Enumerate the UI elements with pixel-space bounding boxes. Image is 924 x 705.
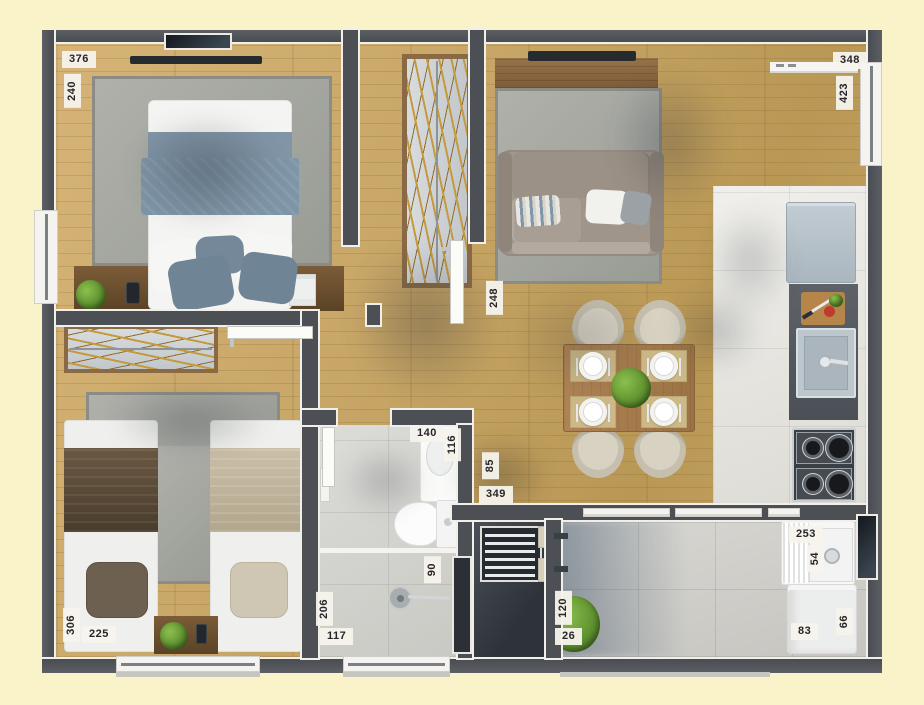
tv-panel	[495, 58, 658, 88]
dim-label-120: 120	[555, 591, 572, 625]
dim-label-90: 90	[424, 556, 441, 583]
bedroom2-door	[227, 326, 313, 339]
dim-label-423: 423	[836, 76, 853, 110]
window-living-right	[860, 62, 882, 166]
pillow	[86, 562, 148, 618]
sofa-front-edge	[512, 242, 650, 254]
ac-grille-unit	[480, 526, 542, 582]
refrigerator	[786, 202, 856, 283]
window-glass-line	[121, 663, 255, 666]
grille-slats	[485, 531, 535, 577]
tank-faucet	[824, 548, 840, 564]
wardrobe-rail	[70, 348, 212, 350]
tv-bedroom1	[130, 56, 262, 64]
striped-pillow	[515, 195, 561, 228]
wardrobe-bedroom2	[64, 325, 218, 373]
dim-label-26: 26	[555, 628, 582, 645]
dim-label-376: 376	[62, 51, 96, 68]
service-window-pane	[768, 508, 800, 517]
dim-label-66: 66	[836, 608, 853, 635]
dining-chair	[572, 300, 624, 350]
plate	[650, 398, 678, 426]
plate	[579, 352, 607, 380]
dim-label-206: 206	[316, 592, 333, 626]
dim-label-225: 225	[82, 626, 116, 643]
sofa-arm-left	[498, 152, 512, 252]
phone	[126, 282, 140, 304]
wall-bedrooms-divider	[56, 311, 318, 325]
towel-rail	[776, 64, 784, 67]
pillow	[166, 253, 236, 313]
window-sill	[343, 672, 450, 677]
shower-partition	[318, 548, 458, 553]
wardrobe-rail	[436, 61, 438, 281]
window-sill	[116, 672, 260, 677]
dim-label-240: 240	[64, 74, 81, 108]
dim-label-248: 248	[486, 281, 503, 315]
dim-label-348: 348	[833, 52, 867, 69]
dim-label-54: 54	[807, 545, 824, 572]
single-bed-right-blanket	[210, 448, 302, 532]
wall-jamb	[367, 305, 380, 325]
service-window-pane	[583, 508, 670, 517]
entry-door	[450, 240, 464, 324]
plate	[579, 398, 607, 426]
wall-hall-living	[470, 30, 484, 242]
bedroom2-door-handle	[230, 338, 234, 347]
window-bathroom-bottom	[343, 656, 450, 672]
window-bedroom1-left	[34, 210, 58, 304]
dining-chair	[634, 300, 686, 350]
dim-label-116: 116	[444, 428, 461, 461]
phone	[196, 624, 207, 644]
dim-label-117: 117	[320, 628, 353, 645]
wall-bathroom-top	[302, 410, 336, 425]
dim-label-85: 85	[482, 452, 499, 479]
burner	[829, 474, 849, 494]
bathroom-door	[322, 427, 335, 487]
dim-label-349: 349	[479, 486, 513, 503]
shower-drain-center	[397, 595, 404, 602]
herbs	[829, 294, 843, 307]
bedroom2-rug	[154, 446, 218, 584]
dim-label-140: 140	[410, 425, 444, 442]
wall-bedroom1-right	[343, 30, 358, 245]
pillow	[237, 250, 299, 305]
dim-label-253: 253	[789, 526, 823, 543]
table-centerpiece-plant	[611, 368, 651, 408]
window-glass-line	[45, 214, 48, 300]
sofa-arm-right	[650, 152, 664, 252]
pillow	[619, 190, 652, 226]
dim-label-83: 83	[791, 623, 818, 640]
grille-pin	[554, 533, 568, 539]
outer-wall-left	[42, 30, 56, 673]
plant	[76, 280, 106, 310]
plate	[650, 352, 678, 380]
window-bedroom2-bottom	[116, 656, 260, 672]
burner	[829, 438, 849, 458]
pillow	[230, 562, 288, 618]
window-bedroom1-top	[164, 33, 232, 50]
grille-pin	[554, 566, 568, 572]
towel-rail	[788, 64, 796, 67]
plant	[160, 622, 188, 650]
window-sill	[560, 672, 770, 677]
toilet-bowl	[394, 502, 442, 546]
wall-bathroom-top	[392, 410, 472, 425]
window-service-right	[856, 514, 878, 580]
window-glass-line	[870, 66, 873, 162]
tv-living	[528, 51, 636, 61]
burner	[806, 477, 820, 491]
single-bed-left-blanket	[64, 448, 158, 532]
dim-label-306: 306	[63, 608, 80, 642]
service-window-pane	[675, 508, 762, 517]
double-bed-blanket	[141, 158, 299, 215]
apartment-floor-plan: 376 240 348 423 248 140 116 85 349 90 20…	[0, 0, 924, 705]
toilet-flush-button	[444, 518, 452, 526]
entry-door-handle	[441, 247, 451, 251]
window-glass-line	[348, 663, 445, 666]
red-pepper	[824, 306, 835, 317]
burner	[806, 441, 820, 455]
duct-shaft	[454, 558, 470, 652]
